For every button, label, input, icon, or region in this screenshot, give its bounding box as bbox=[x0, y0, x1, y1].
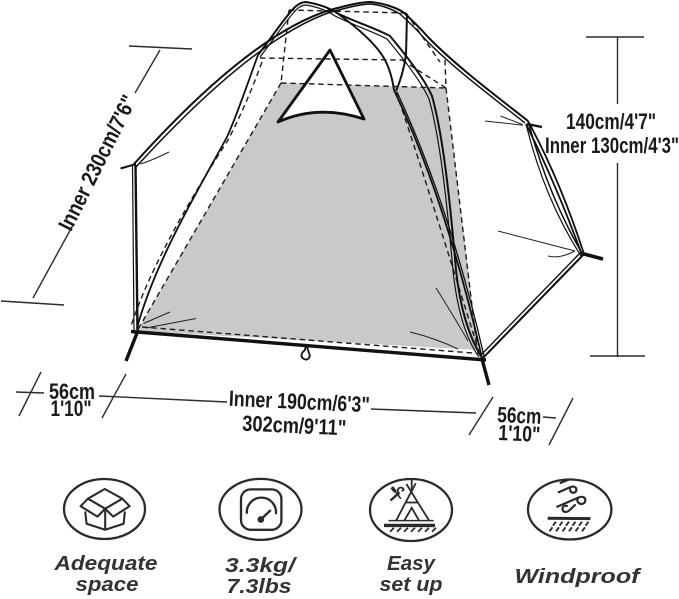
svg-text:space: space bbox=[76, 574, 139, 596]
svg-text:set up: set up bbox=[380, 574, 443, 596]
svg-text:Windproof: Windproof bbox=[515, 566, 643, 588]
svg-text:3.3kg/: 3.3kg/ bbox=[225, 555, 298, 577]
svg-text:1'10": 1'10" bbox=[498, 420, 541, 447]
svg-text:140cm/4'7": 140cm/4'7" bbox=[566, 109, 656, 134]
svg-text:Inner 130cm/4'3": Inner 130cm/4'3" bbox=[545, 133, 679, 158]
svg-text:1'10": 1'10" bbox=[51, 396, 92, 421]
svg-text:Adequate: Adequate bbox=[53, 553, 157, 575]
svg-text:Easy: Easy bbox=[387, 553, 436, 575]
svg-text:Inner 230cm/7'6": Inner 230cm/7'6" bbox=[53, 91, 141, 235]
svg-text:302cm/9'11": 302cm/9'11" bbox=[242, 411, 347, 441]
svg-text:7.3lbs: 7.3lbs bbox=[227, 576, 292, 598]
